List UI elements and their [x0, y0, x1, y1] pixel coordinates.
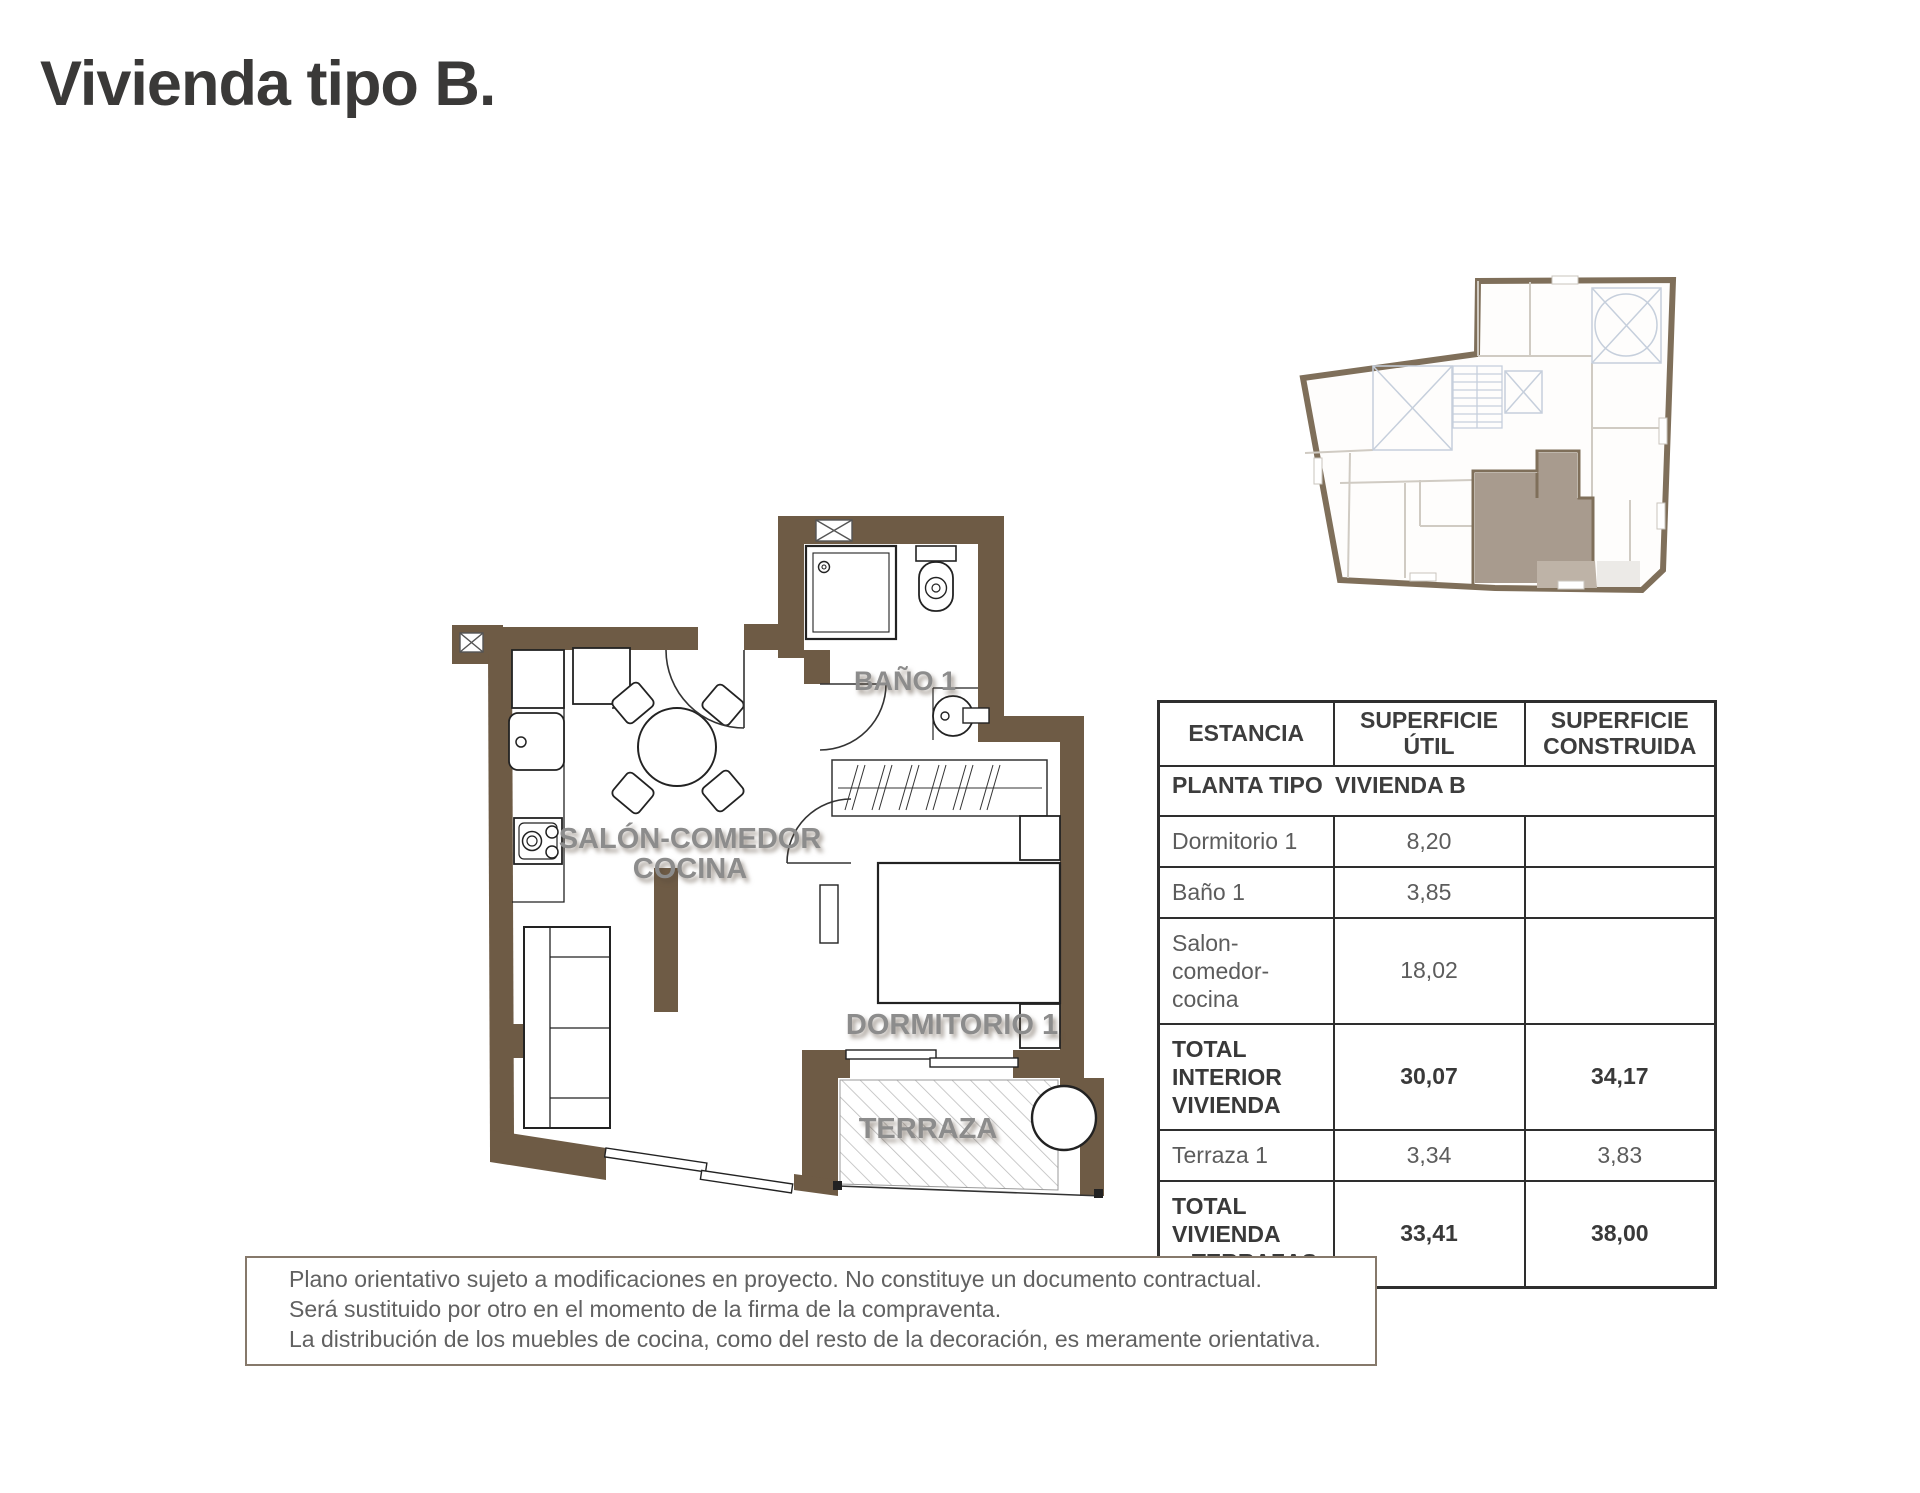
page-title: Vivienda tipo B.: [40, 48, 495, 120]
table-row: Terraza 13,343,83: [1159, 1130, 1716, 1181]
table-header-row: ESTANCIA SUPERFICIE ÚTIL SUPERFICIE CONS…: [1159, 702, 1716, 766]
col-header-superficie-construida: SUPERFICIE CONSTRUIDA: [1525, 702, 1716, 766]
sofa: [524, 927, 610, 1128]
table-subheader-row: PLANTA TIPO VIVIENDA B: [1159, 766, 1716, 816]
bed: [878, 863, 1060, 1003]
planta-tipo-label: PLANTA TIPO: [1172, 772, 1335, 799]
table-row: Dormitorio 18,20: [1159, 816, 1716, 867]
dining-set: [610, 681, 745, 816]
kitchen-units: [509, 648, 630, 902]
key-plan: [1290, 268, 1710, 630]
area-table-body: PLANTA TIPO VIVIENDA B Dormitorio 18,20B…: [1159, 766, 1716, 1288]
label-dormitorio: DORMITORIO 1: [846, 1009, 1058, 1041]
terrace-post: [1094, 1189, 1103, 1198]
label-terraza: TERRAZA: [859, 1113, 998, 1145]
disclaimer-line: Será sustituido por otro en el momento d…: [289, 1295, 1363, 1325]
col-header-estancia: ESTANCIA: [1159, 702, 1334, 766]
nightstand: [1020, 816, 1060, 860]
table-row: Salon- comedor- cocina18,02: [1159, 918, 1716, 1024]
terrace-sliding-door: [846, 1050, 1018, 1067]
terrace-post: [833, 1181, 842, 1190]
shower: [806, 546, 896, 639]
vivienda-b-label: VIVIENDA B: [1335, 772, 1466, 799]
facade-window: [603, 1148, 793, 1193]
label-salon-line2: COCINA: [633, 853, 747, 885]
table-row: TOTAL INTERIOR VIVIENDA30,0734,17: [1159, 1024, 1716, 1130]
label-bano: BAÑO 1: [854, 665, 956, 696]
desk: [820, 885, 838, 943]
wardrobe: [832, 760, 1047, 816]
surface-table: ESTANCIA SUPERFICIE ÚTIL SUPERFICIE CONS…: [1157, 700, 1717, 1289]
label-salon-line1: SALÓN-COMEDOR: [559, 821, 822, 855]
disclaimer-line: La distribución de los muebles de cocina…: [289, 1325, 1363, 1355]
terrace-table: [1032, 1086, 1096, 1150]
col-header-superficie-util: SUPERFICIE ÚTIL: [1334, 702, 1525, 766]
floor-plan: BAÑO 1 SALÓN-COMEDOR COCINA DORMITORIO 1…: [440, 500, 1130, 1212]
disclaimer-line: Plano orientativo sujeto a modificacione…: [289, 1265, 1363, 1295]
toilet: [916, 546, 956, 611]
table-row: Baño 13,85: [1159, 867, 1716, 918]
disclaimer-box: Plano orientativo sujeto a modificacione…: [245, 1256, 1377, 1366]
